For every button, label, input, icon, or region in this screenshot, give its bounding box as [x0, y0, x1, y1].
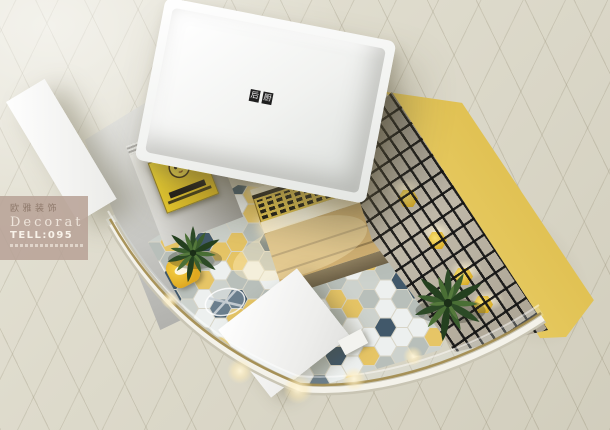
floor-light	[403, 346, 423, 366]
watermark-phone: TELL:095	[10, 230, 88, 241]
floor-light	[227, 358, 253, 384]
watermark-brand: Decorat	[10, 215, 88, 230]
render-scene: 后 厨	[0, 0, 610, 430]
plant-icon-right	[414, 268, 486, 342]
floor-light	[161, 291, 179, 309]
watermark-company: 欧雅装饰	[10, 201, 88, 214]
watermark: 欧雅装饰 Decorat TELL:095	[0, 196, 88, 260]
front-overlay	[0, 0, 610, 430]
watermark-fineprint	[10, 244, 84, 247]
floor-light	[283, 374, 313, 404]
floor-light	[342, 367, 366, 391]
